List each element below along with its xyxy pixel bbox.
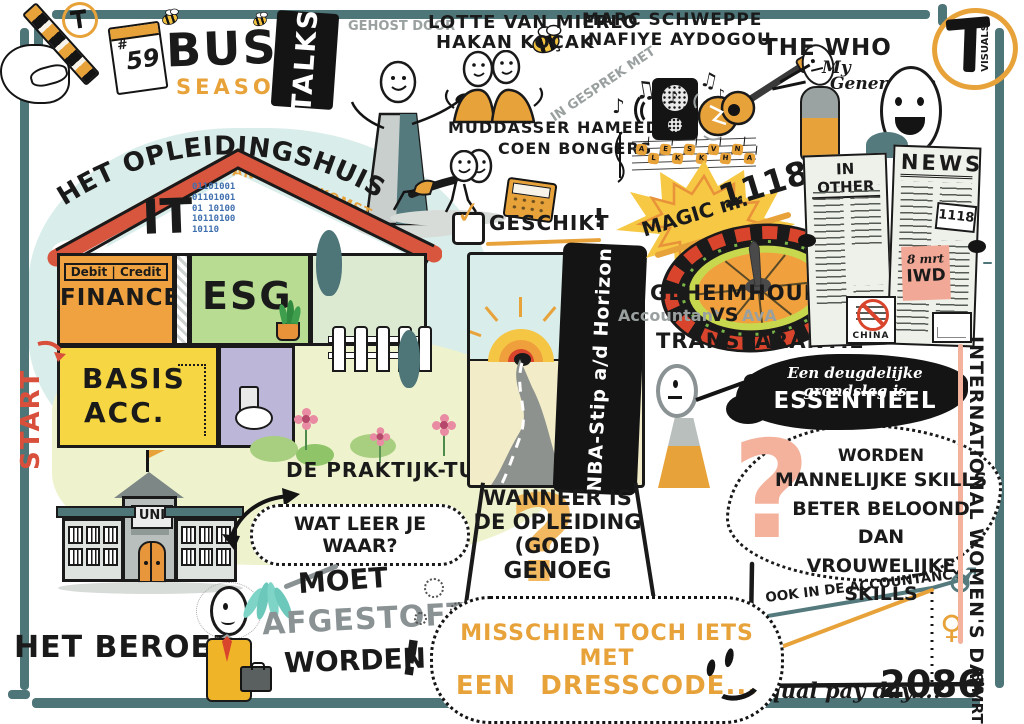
wing-roof bbox=[56, 506, 136, 518]
basis-label-2: ACC. bbox=[84, 396, 165, 429]
start-label: START bbox=[18, 352, 45, 470]
debit-credit-label: Debit | Credit bbox=[64, 263, 169, 281]
uni-building: UNI bbox=[62, 462, 237, 602]
winking-face-icon bbox=[695, 641, 758, 701]
skills-line: MANNELIJKE SKILLS bbox=[772, 466, 990, 495]
geschikt-excl: ! bbox=[593, 206, 605, 233]
finance-room: Debit | Credit FINANCE bbox=[57, 253, 175, 346]
bee-icon bbox=[162, 13, 178, 24]
wc-room bbox=[218, 345, 295, 448]
geschikt-label: GESCHIKT bbox=[489, 213, 609, 234]
wanneer-line: (GOED) bbox=[455, 534, 660, 558]
toilet-bowl bbox=[235, 406, 273, 430]
frame-corner-tick bbox=[8, 690, 30, 699]
briefcase-icon bbox=[240, 666, 272, 692]
band-name: THE WHO bbox=[762, 36, 892, 60]
debate-right: AvA bbox=[742, 308, 777, 325]
prohibition-icon bbox=[857, 299, 889, 331]
finance-label: FINANCE bbox=[60, 285, 172, 311]
calendar-icon: # 59 bbox=[108, 21, 169, 96]
attic-label: IT bbox=[141, 191, 193, 243]
house-wall-hatch bbox=[174, 253, 190, 346]
esg-room: ESG bbox=[189, 253, 311, 346]
start-arrow-icon bbox=[36, 338, 66, 364]
wanneer-line: WANNEER IS bbox=[455, 486, 660, 510]
reader-hand bbox=[968, 240, 986, 253]
dotted-stairs bbox=[178, 364, 206, 436]
guest-duo-figures bbox=[440, 50, 552, 124]
music-note-icon: ♫ bbox=[632, 76, 658, 105]
logo-word: VISUALS bbox=[980, 24, 991, 72]
guest-name: MARC SCHWEPPE bbox=[582, 12, 762, 30]
tower-roof bbox=[114, 472, 184, 498]
skills-question: WORDEN MANNELIJKE SKILLS BETER BELOOND D… bbox=[772, 446, 990, 570]
sticky-label: IWD bbox=[902, 265, 951, 287]
binary-rain: 011010010110100101 101001011010010110 bbox=[192, 182, 238, 248]
newspaper-right-title: NEWS bbox=[900, 150, 973, 179]
grondslag-line2: ESSENTIEEL bbox=[750, 388, 960, 414]
frame-corner-tick bbox=[983, 262, 992, 264]
iwd-sticky-note: 8 mrt IWD bbox=[901, 245, 951, 301]
skills-line: VROUWELIJKE SKILLS bbox=[772, 552, 990, 609]
plant-icon bbox=[276, 322, 300, 341]
newspaper-badge: 1118 bbox=[935, 202, 978, 233]
wanneer-line: DE OPLEIDING bbox=[455, 510, 660, 534]
iwd-date: 8 MRT bbox=[968, 672, 984, 724]
debate-left: Accountant bbox=[618, 308, 721, 325]
newspaper: IN OTHER NEWS 1118 8 mrt IWD CHINA bbox=[806, 140, 978, 350]
dresscode-een: EEN bbox=[456, 671, 516, 701]
tvisuals-logo: VISUALS bbox=[928, 6, 1014, 90]
basis-label-1: BASIS bbox=[82, 362, 186, 395]
moet-label: MOET bbox=[297, 563, 389, 599]
checkmark-icon: ✓ bbox=[454, 196, 483, 231]
brand-talks-block: TALKS bbox=[271, 10, 340, 110]
wanneer-line: GENOEG bbox=[455, 558, 660, 584]
dresscode-word: DRESSCODE bbox=[540, 671, 725, 701]
china-label: CHINA bbox=[848, 331, 894, 341]
flag-icon bbox=[149, 450, 165, 458]
basis-room: BASIS ACC. bbox=[57, 345, 219, 448]
dust-sparkle bbox=[424, 578, 444, 598]
skills-line: BETER BELOOND DAN bbox=[772, 495, 990, 552]
brand-talks: TALKS bbox=[286, 7, 324, 114]
music-note-icon: ♪ bbox=[612, 96, 625, 117]
wat-leer-question: WAT LEER JE WAAR? bbox=[253, 513, 467, 557]
wat-leer-bubble: WAT LEER JE WAAR? bbox=[250, 504, 470, 566]
uni-door bbox=[138, 541, 166, 583]
uni-wing-left bbox=[62, 518, 124, 582]
flower-icon bbox=[294, 408, 318, 452]
tree-icon bbox=[398, 330, 420, 388]
episode-number: 59 bbox=[125, 45, 162, 75]
music-note-icon: ♪ bbox=[668, 90, 678, 107]
sketchnote-canvas: # 59 BUSY SEASON TALKS GEHOST DOOR LOTTE… bbox=[0, 0, 1024, 724]
reader-hand bbox=[798, 234, 816, 247]
dust-sparkle bbox=[414, 612, 427, 625]
skills-line: WORDEN bbox=[772, 446, 990, 466]
china-stamp: CHINA bbox=[846, 296, 896, 344]
worden-excl: ! bbox=[397, 633, 426, 686]
tree-icon bbox=[316, 230, 342, 296]
guest-name: NAFIYE AYDOGOU bbox=[588, 32, 772, 50]
flower-icon bbox=[432, 414, 456, 458]
nba-banner-text: NBA-Stip a/d Horizon bbox=[584, 246, 617, 492]
debate-vs: VS bbox=[710, 306, 738, 326]
bee-icon bbox=[253, 16, 267, 26]
house-roof bbox=[42, 146, 442, 268]
